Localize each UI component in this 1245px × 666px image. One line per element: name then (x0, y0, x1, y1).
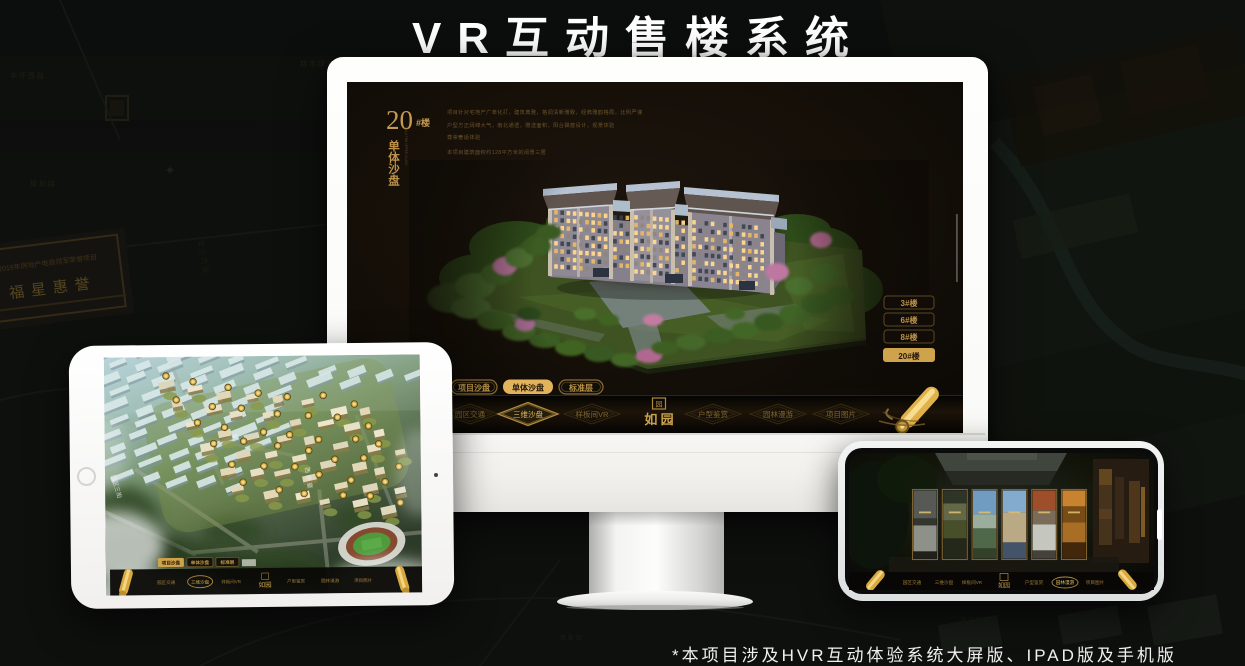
svg-text:园区交通: 园区交通 (455, 409, 485, 419)
svg-text:VILLA THE UPPER CLASS: VILLA THE UPPER CLASS (404, 127, 408, 166)
svg-text:盘: 盘 (388, 174, 400, 188)
svg-text:标准层: 标准层 (568, 383, 593, 393)
svg-text:如 园: 如 园 (644, 412, 673, 427)
svg-text:户型鉴赏: 户型鉴赏 (1025, 579, 1044, 586)
svg-text:样板间VR: 样板间VR (576, 409, 610, 419)
svg-text:园区交通: 园区交通 (903, 579, 922, 586)
svg-text:单: 单 (388, 139, 400, 153)
svg-text:翡 翠 湾: 翡 翠 湾 (560, 634, 581, 642)
svg-text:如园: 如园 (998, 582, 1010, 590)
svg-text:单体沙盘: 单体沙盘 (512, 383, 544, 393)
svg-text:三维沙盘: 三维沙盘 (935, 579, 954, 586)
svg-text:项目图片: 项目图片 (1086, 579, 1105, 586)
svg-text:6#楼: 6#楼 (901, 315, 918, 325)
svg-text:8#楼: 8#楼 (901, 332, 918, 342)
svg-text:项目针对宅地产广萃化打，建筑典雅，格调清新雅致，经典雅韵格局: 项目针对宅地产广萃化打，建筑典雅，格调清新雅致，经典雅韵格局，比例严谨 (447, 108, 643, 116)
svg-text:户型鉴赏: 户型鉴赏 (698, 409, 728, 419)
svg-text:20#楼: 20#楼 (898, 351, 919, 361)
svg-text:三维沙盘: 三维沙盘 (513, 409, 543, 419)
svg-text:中 环 西 路: 中 环 西 路 (10, 71, 44, 80)
svg-text:样板间VR: 样板间VR (962, 579, 983, 586)
svg-text:3#楼: 3#楼 (901, 298, 918, 308)
svg-text:园林漫游: 园林漫游 (1056, 579, 1075, 586)
svg-text:尊崇奢适体验: 尊崇奢适体验 (447, 133, 481, 141)
svg-text:规 划 路: 规 划 路 (30, 179, 55, 188)
svg-text:项目图片: 项目图片 (826, 409, 856, 419)
svg-text:#楼: #楼 (416, 117, 430, 128)
svg-text:户型方正阔绰大气，南北通透，赠送面积，阳台飘窗设计，观景体验: 户型方正阔绰大气，南北通透，赠送面积，阳台飘窗设计，观景体验 (447, 121, 615, 129)
svg-text:本项目建筑面积约128平方米的阔景三居: 本项目建筑面积约128平方米的阔景三居 (447, 148, 546, 156)
svg-text:沙: 沙 (388, 163, 400, 176)
svg-text:园: 园 (656, 401, 663, 409)
svg-text:项目沙盘: 项目沙盘 (458, 383, 490, 393)
svg-text:园林漫游: 园林漫游 (763, 409, 793, 419)
svg-text:体: 体 (388, 151, 400, 165)
svg-text:如园: 如园 (259, 580, 272, 589)
